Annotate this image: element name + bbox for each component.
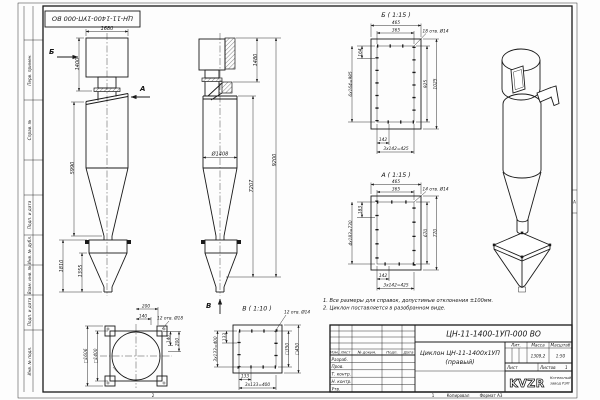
tb-header-data: Дата: [403, 349, 415, 354]
tb-row-label: Н. контр.: [332, 379, 352, 384]
margin-cell-label: Инв. № подл.: [27, 347, 32, 376]
tb-row-label: Пров.: [332, 364, 344, 369]
section-letter-a: А: [139, 85, 145, 93]
tb-scale-value: 1:50: [556, 354, 566, 359]
dim-label: 465: [392, 179, 400, 185]
dim-label: 164: [358, 48, 364, 56]
section-letter-v: В: [206, 302, 211, 310]
tb-mass-label: Масса: [531, 343, 545, 348]
dim-label: 3х142=425: [383, 146, 409, 152]
tb-header-list: Лист: [340, 349, 351, 354]
dim-label: 1025: [433, 78, 439, 89]
tb-name-line-2: (правый): [445, 359, 474, 366]
dim-label: 140: [139, 314, 147, 320]
tb-header-podp: Подп.: [386, 349, 398, 354]
drawing-sheet: Перв. примен. Справ. № Подп. и дата Инв.…: [0, 0, 600, 400]
rotated-designation: ЦН-11-1400-1УП-000 ВО: [52, 15, 133, 23]
margin-cell-label: Подп. и дата: [27, 200, 32, 229]
dim-label: Ø1408: [211, 151, 229, 158]
detail-v: В ( 1:10 ) 12 отв. Ø14 □350 □450 133 3х1…: [213, 306, 310, 391]
tb-lit-label: Лит.: [510, 343, 521, 348]
dim-label: 770: [433, 229, 439, 237]
dim-label: 140: [166, 335, 172, 343]
section-letter-b: Б: [49, 48, 54, 56]
dim-label: 1355: [78, 265, 84, 278]
zone-letter: А: [573, 200, 576, 205]
dim-label: 142: [379, 273, 387, 279]
isometric-view: [493, 49, 559, 292]
zone-number-2: 2: [152, 393, 155, 398]
dim-label: 9200: [272, 154, 278, 167]
detail-title: В ( 1:10 ): [242, 306, 271, 313]
dim-label: □350: [285, 343, 291, 356]
margin-cell-label: Взам. инв. №: [27, 265, 32, 294]
tb-row-label: Разраб.: [332, 357, 348, 362]
dim-label: □450: [295, 343, 301, 356]
dim-label: 183: [358, 206, 364, 214]
detail-a: А ( 1:15 ) 14 отв. Ø14 465 365 183 4х183…: [348, 172, 449, 291]
detail-title: Б ( 1:15 ): [381, 12, 410, 19]
dim-label: □1400: [93, 348, 99, 363]
tb-mass-value: 1309,2: [531, 354, 546, 359]
margin-labels: Перв. примен. Справ. № Подп. и дата Инв.…: [27, 54, 576, 375]
format-label: Формат А3: [480, 393, 503, 398]
tb-header-doc: № докум.: [357, 349, 377, 354]
dim-label: □1606: [83, 348, 89, 363]
top-view: 200 140 12 отв. Ø18 140 200 □1400 □1606: [83, 304, 183, 389]
detail-b: Б ( 1:15 ) 18 отв. Ø14 465 365 164 6х164…: [348, 12, 449, 154]
dim-label: 365: [392, 28, 400, 34]
dim-label: 1810: [59, 260, 65, 273]
holes-note: 12 отв. Ø18: [157, 315, 183, 322]
dim-label: 1680: [101, 26, 114, 32]
holes-note: 18 отв. Ø14: [423, 28, 449, 35]
holes-note: 12 отв. Ø14: [284, 309, 310, 316]
side-view: Ø1408 1480 7207 9200 В: [199, 33, 281, 314]
dim-label: 133: [241, 374, 249, 380]
margin-cell-label: Справ. №: [27, 119, 32, 140]
note-line-1: 1. Все размеры для справок, допустимые о…: [323, 298, 493, 304]
company-name-line-1: Котельный: [550, 376, 572, 380]
dim-label: 6х164=985: [348, 71, 354, 97]
copied-label: Копировал: [447, 393, 470, 398]
dim-label: 5990: [70, 162, 76, 175]
tb-row-label: Утв.: [332, 386, 341, 391]
tb-sheets-value: 1: [565, 365, 568, 370]
tb-name-line-1: Циклон ЦН-11-1400х1УП: [420, 350, 500, 357]
dim-label: 3х133=400: [245, 382, 271, 388]
margin-cell-label: Инв. № дубл.: [27, 236, 32, 265]
dim-label: 365: [392, 187, 400, 193]
dim-label: 7207: [249, 179, 255, 193]
company-name-line-2: завод РЭП: [550, 382, 570, 386]
dim-label: 3х142=425: [383, 283, 409, 289]
title-block: ЦН-11-1400-1УП-000 ВО Циклон ЦН-11-1400х…: [330, 325, 572, 392]
dim-label: 925: [423, 80, 429, 88]
tb-header-izm: Изм.: [330, 349, 339, 354]
notes: 1. Все размеры для справок, допустимые о…: [323, 298, 493, 312]
tb-sheets-label: Листов: [539, 365, 556, 370]
tb-designation: ЦН-11-1400-1УП-000 ВО: [446, 330, 541, 339]
margin-cell-label: Перв. примен.: [27, 54, 32, 85]
top-stamp: ЦН-11-1400-1УП-000 ВО: [45, 11, 140, 27]
dim-label: 142: [379, 137, 387, 143]
dim-label: 1480: [253, 54, 259, 67]
note-line-2: 2. Циклон поставляется в разобранном вид…: [323, 306, 446, 312]
dim-label: 670: [423, 229, 429, 237]
zone-number-1: 1: [432, 393, 435, 398]
margin-cell-label: Подп. и дата: [27, 297, 32, 326]
tb-sheet-label: Лист: [506, 365, 518, 370]
dim-label: 200: [142, 304, 150, 310]
tb-scale-label: Масштаб: [551, 343, 571, 348]
company-logo: KVZR: [509, 377, 545, 390]
dim-label: 1400: [75, 58, 81, 71]
dim-label: 465: [392, 20, 400, 26]
bottom-margin: 2 1 Копировал Формат А3: [152, 393, 503, 398]
holes-note: 14 отв. Ø14: [423, 186, 449, 193]
dim-label: 4х183=730: [348, 220, 354, 246]
dim-label: 133: [222, 333, 228, 341]
tb-row-label: Т. контр.: [332, 372, 351, 377]
drawing-canvas: Перв. примен. Справ. № Подп. и дата Инв.…: [0, 0, 600, 400]
dim-label: 3х133=400: [213, 336, 219, 362]
front-view: 1680 1400 5990 1810 1355 Б А: [49, 26, 150, 296]
detail-title: А ( 1:15 ): [380, 172, 410, 179]
dim-label: 200: [175, 338, 181, 346]
sheet-frame: [18, 3, 577, 398]
